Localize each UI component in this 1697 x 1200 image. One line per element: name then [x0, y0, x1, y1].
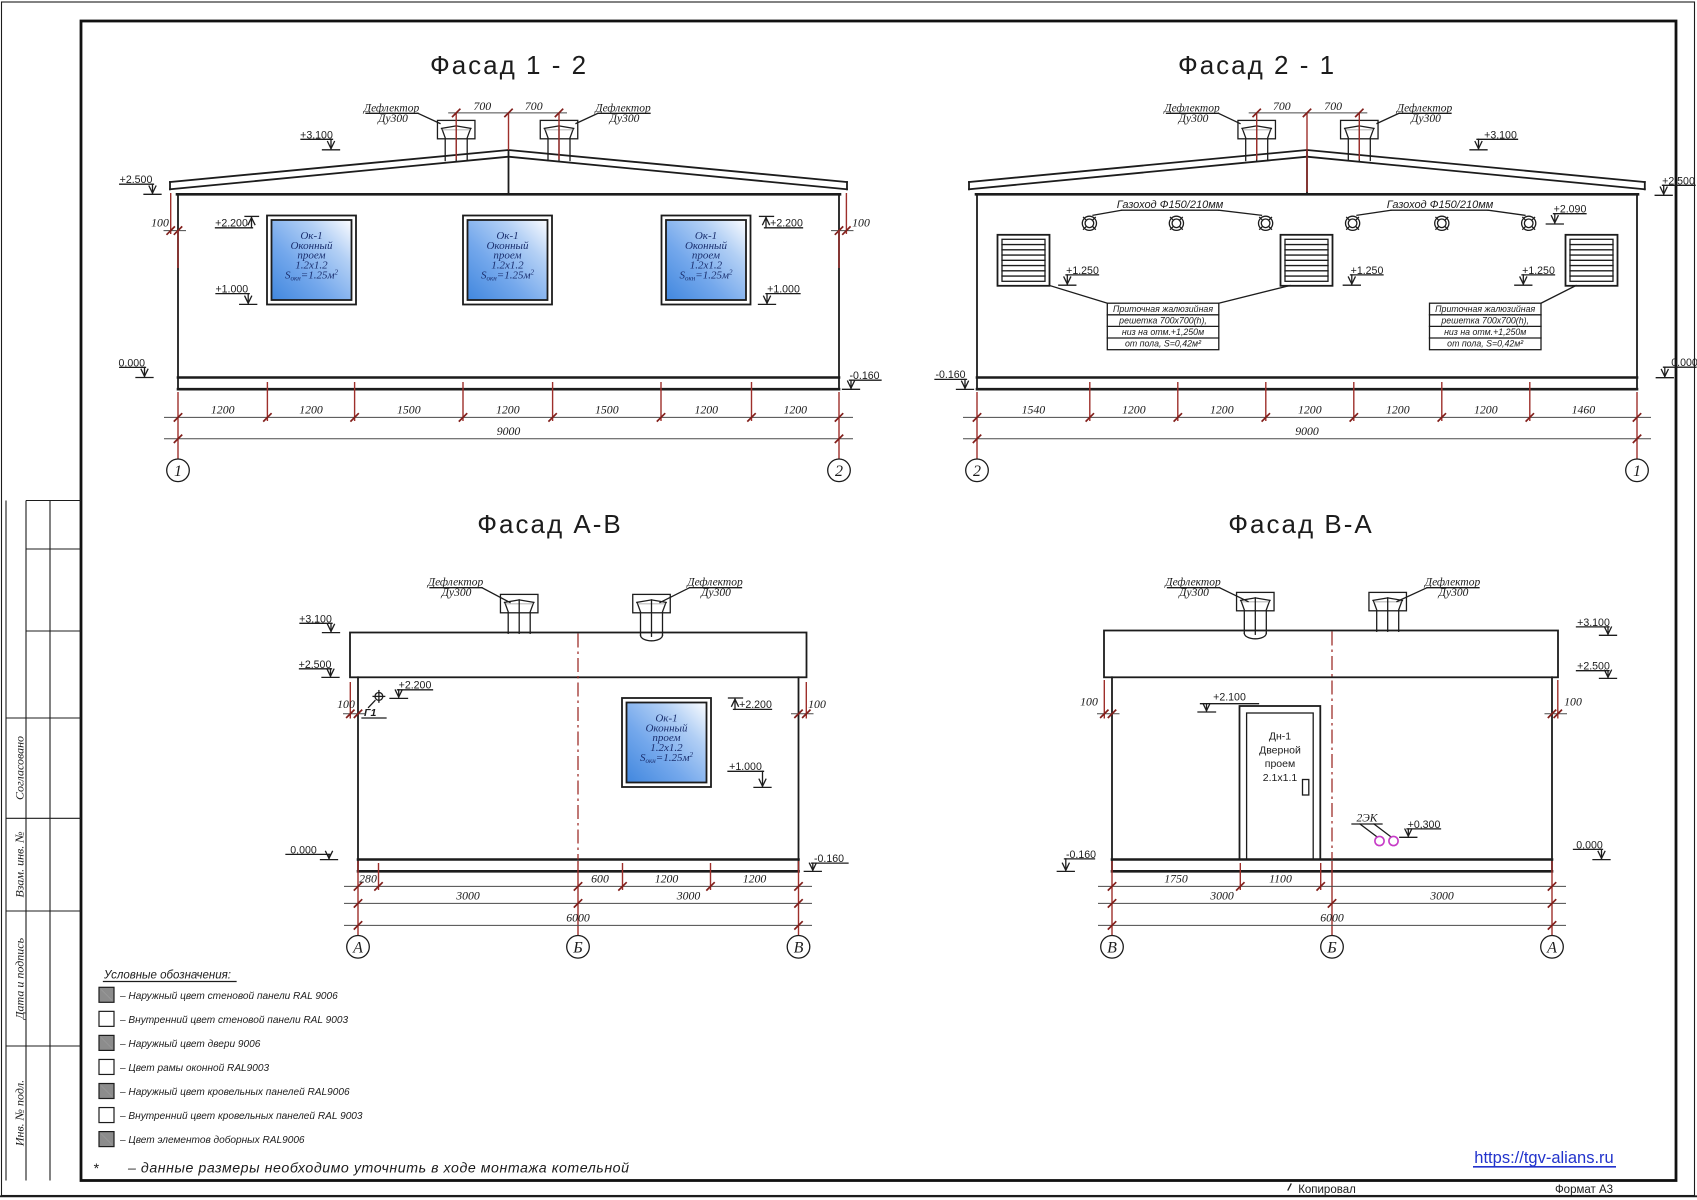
svg-text:1540: 1540 — [1022, 403, 1046, 417]
svg-text:1200: 1200 — [1122, 403, 1146, 417]
svg-text:100: 100 — [808, 697, 826, 711]
svg-text:+2.100: +2.100 — [1213, 691, 1246, 703]
svg-text:1200: 1200 — [1474, 403, 1498, 417]
svg-text:100: 100 — [1564, 695, 1582, 709]
svg-text:– данные размеры необходимо ут: – данные размеры необходимо уточнить в х… — [127, 1161, 630, 1177]
svg-text:2.1х1.1: 2.1х1.1 — [1263, 772, 1298, 784]
svg-text:низ на отм.+1,250м: низ на отм.+1,250м — [1444, 327, 1526, 337]
svg-text:Дверной: Дверной — [1259, 744, 1301, 756]
svg-text:1200: 1200 — [655, 872, 679, 886]
svg-text:1200: 1200 — [694, 403, 718, 417]
svg-text:решетка 700х700(h),: решетка 700х700(h), — [1440, 316, 1529, 326]
svg-text:Согласовано: Согласовано — [13, 736, 27, 800]
svg-text:https://tgv-alians.ru: https://tgv-alians.ru — [1474, 1149, 1613, 1167]
svg-text:2: 2 — [973, 463, 981, 480]
svg-text:1200: 1200 — [211, 403, 235, 417]
svg-text:6000: 6000 — [1320, 911, 1344, 925]
svg-text:100: 100 — [1080, 695, 1098, 709]
svg-text:1460: 1460 — [1572, 403, 1596, 417]
svg-text:1200: 1200 — [1386, 403, 1410, 417]
svg-text:Газоход Ф150/210мм: Газоход Ф150/210мм — [1117, 199, 1224, 211]
svg-text:Дн-1: Дн-1 — [1269, 731, 1291, 743]
svg-text:3000: 3000 — [676, 889, 701, 903]
svg-text:1750: 1750 — [1164, 872, 1188, 886]
svg-text:Приточная жалюзийная: Приточная жалюзийная — [1435, 304, 1535, 314]
svg-text:*: * — [93, 1161, 99, 1177]
svg-text:6000: 6000 — [566, 911, 590, 925]
svg-text:100: 100 — [337, 697, 355, 711]
svg-text:3000: 3000 — [1209, 889, 1234, 903]
svg-text:Ду300: Ду300 — [1438, 587, 1469, 599]
svg-text:Фасад 1 - 2: Фасад 1 - 2 — [430, 50, 588, 80]
svg-text:Условные обозначения:: Условные обозначения: — [103, 970, 231, 982]
svg-text:1200: 1200 — [1298, 403, 1322, 417]
svg-text:2ЭК: 2ЭК — [1357, 813, 1379, 825]
svg-text:проем: проем — [1265, 758, 1295, 770]
svg-text:Инв. № подл.: Инв. № подл. — [13, 1080, 27, 1147]
svg-text:700: 700 — [1324, 99, 1342, 113]
svg-text:9000: 9000 — [497, 424, 521, 438]
svg-text:3000: 3000 — [1429, 889, 1454, 903]
svg-text:Г1: Г1 — [364, 707, 376, 719]
svg-text:от пола, S=0,42м²: от пола, S=0,42м² — [1125, 339, 1202, 349]
svg-text:700: 700 — [525, 99, 543, 113]
svg-text:1200: 1200 — [743, 872, 767, 886]
svg-text:– Наружный цвет стеновой панел: – Наружный цвет стеновой панели RAL 9006 — [119, 991, 338, 1002]
svg-text:– Наружный цвет двери 9006: – Наружный цвет двери 9006 — [119, 1039, 261, 1050]
svg-text:Формат А3: Формат А3 — [1555, 1184, 1613, 1196]
svg-text:1200: 1200 — [1210, 403, 1234, 417]
svg-text:1200: 1200 — [299, 403, 323, 417]
svg-text:3000: 3000 — [455, 889, 480, 903]
svg-text:Приточная жалюзийная: Приточная жалюзийная — [1113, 304, 1213, 314]
svg-text:Ду300: Ду300 — [1410, 113, 1441, 125]
svg-text:– Внутренний цвет кровельных п: – Внутренний цвет кровельных панелей RAL… — [119, 1111, 363, 1122]
svg-text:– Цвет рамы оконной RAL9003: – Цвет рамы оконной RAL9003 — [119, 1063, 270, 1074]
svg-text:низ на отм.+1,250м: низ на отм.+1,250м — [1122, 327, 1204, 337]
svg-text:Газоход Ф150/210мм: Газоход Ф150/210мм — [1387, 199, 1494, 211]
svg-text:Ду300: Ду300 — [609, 113, 640, 125]
svg-text:В: В — [1107, 939, 1117, 956]
svg-text:Взам. инв. №: Взам. инв. № — [13, 831, 27, 897]
svg-text:В: В — [794, 939, 804, 956]
svg-text:280: 280 — [359, 872, 377, 886]
svg-text:1: 1 — [174, 463, 182, 480]
svg-text:1200: 1200 — [783, 403, 807, 417]
svg-text:Ду300: Ду300 — [700, 587, 731, 599]
svg-text:Б: Б — [572, 939, 583, 956]
svg-text:1500: 1500 — [595, 403, 619, 417]
svg-text:1: 1 — [1633, 463, 1641, 480]
svg-text:Ду300: Ду300 — [1178, 587, 1209, 599]
svg-text:100: 100 — [151, 216, 169, 230]
svg-text:700: 700 — [473, 99, 491, 113]
svg-text:1100: 1100 — [1269, 872, 1292, 886]
svg-text:– Наружный цвет кровельных пан: – Наружный цвет кровельных панелей RAL90… — [119, 1087, 350, 1098]
svg-text:А: А — [352, 939, 363, 956]
svg-text:Фасад А-В: Фасад А-В — [477, 509, 622, 539]
svg-text:1500: 1500 — [397, 403, 421, 417]
svg-text:2: 2 — [835, 463, 843, 480]
svg-text:решетка 700х700(h),: решетка 700х700(h), — [1118, 316, 1207, 326]
svg-text:Ду300: Ду300 — [441, 587, 472, 599]
svg-text:от пола, S=0,42м²: от пола, S=0,42м² — [1447, 339, 1524, 349]
svg-text:А: А — [1546, 939, 1557, 956]
svg-text:700: 700 — [1273, 99, 1291, 113]
svg-text:1200: 1200 — [496, 403, 520, 417]
svg-text:Копировал: Копировал — [1298, 1184, 1356, 1196]
svg-text:Ду300: Ду300 — [377, 113, 408, 125]
svg-text:Ду300: Ду300 — [1178, 113, 1209, 125]
svg-text:– Цвет элементов доборных RAL9: – Цвет элементов доборных RAL9006 — [119, 1134, 305, 1146]
svg-text:600: 600 — [591, 872, 609, 886]
svg-text:Дата и подпись: Дата и подпись — [13, 937, 27, 1020]
svg-text:Фасад 2 - 1: Фасад 2 - 1 — [1178, 50, 1336, 80]
svg-text:Фасад В-А: Фасад В-А — [1228, 509, 1373, 539]
svg-text:9000: 9000 — [1295, 424, 1319, 438]
svg-text:– Внутренний цвет стеновой пан: – Внутренний цвет стеновой панели RAL 90… — [119, 1015, 348, 1026]
svg-text:Б: Б — [1326, 939, 1337, 956]
svg-text:100: 100 — [852, 216, 870, 230]
